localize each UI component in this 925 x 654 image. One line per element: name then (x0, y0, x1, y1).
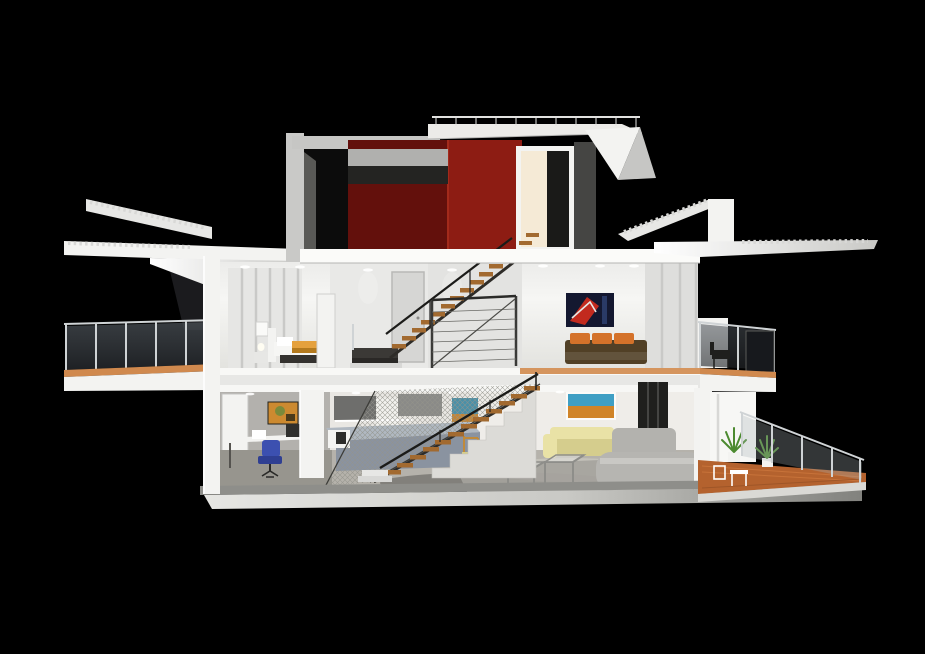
stair-tread (397, 463, 413, 468)
downlight-icon (246, 393, 255, 396)
landing-step (350, 363, 402, 368)
stair-tread (524, 386, 540, 391)
balcony-glass (66, 322, 214, 370)
stairwell-wall-lit (448, 140, 522, 258)
downlight-icon (556, 391, 565, 394)
slatted-column (638, 382, 668, 430)
bedroom-picture (256, 322, 268, 336)
stair-tread (461, 424, 477, 429)
sofa-arm (543, 434, 557, 458)
downlight-icon (629, 264, 639, 267)
downlight-icon (352, 392, 361, 395)
winder-step (362, 470, 388, 476)
stair-tread (412, 328, 426, 333)
landscape-painting (566, 392, 616, 420)
tower-side-panel (574, 142, 596, 252)
stair-tread (435, 440, 451, 445)
chair-back (262, 440, 280, 457)
plant-pot (728, 452, 740, 462)
house-section-illustration (0, 0, 925, 654)
winder-step (358, 476, 392, 482)
painting-field (568, 406, 614, 418)
stairwell-window-dark (547, 151, 569, 247)
bedroom-door (317, 294, 335, 368)
stair-tread (423, 447, 439, 452)
cut-roof-post (286, 133, 304, 262)
daybed-highlight (600, 458, 700, 464)
upper-ceiling-slab (300, 249, 700, 263)
stair-tread (526, 233, 539, 237)
stair-tread (511, 394, 527, 399)
stair-tread (441, 304, 455, 309)
downlight-icon (295, 265, 305, 268)
stair-tread (410, 455, 426, 460)
abstract-painting (566, 293, 614, 327)
stair-tread (402, 336, 416, 341)
desk-printer (252, 430, 266, 439)
living-wood-floor-strip (520, 368, 700, 374)
downlight-icon (538, 264, 548, 267)
cut-slab-band (348, 149, 448, 166)
stair-tread (489, 264, 503, 269)
downlight-icon (447, 268, 457, 271)
office-print (268, 402, 298, 424)
stair-tread (470, 280, 484, 285)
upper-right-balcony (698, 318, 776, 392)
pillow (277, 337, 293, 346)
stair-tread (479, 272, 493, 277)
stair-tread (519, 241, 532, 245)
chair-seat (258, 456, 282, 464)
slab-shadow-band (348, 166, 448, 184)
stair-tread (392, 344, 406, 349)
painting-blue-band (602, 296, 607, 324)
void-inner-face (304, 152, 316, 260)
outdoor-table-top (730, 470, 748, 474)
wall-face (203, 256, 220, 494)
sofa-cushion (614, 333, 634, 344)
downlight-icon (595, 264, 605, 267)
wall-wash-glow (358, 272, 378, 304)
slider-glass-zone (645, 262, 698, 368)
stair-tread (473, 417, 489, 422)
stairwell-window-lit (521, 151, 547, 247)
door-knob (417, 317, 420, 320)
print-green-blob (275, 406, 285, 416)
painting-sky (568, 394, 614, 406)
tinted-glass-panel (746, 331, 774, 372)
stair-tread (460, 288, 474, 293)
clerestory-wall (708, 199, 734, 243)
chair-seat (712, 350, 730, 359)
downlight-icon (240, 265, 250, 268)
bedside-lamp (258, 343, 265, 351)
rendered-image (0, 0, 925, 654)
sofa-cushion (570, 333, 590, 344)
upper-left-balcony (64, 320, 216, 391)
sofa-cushion (592, 333, 612, 344)
sofa-back (550, 427, 614, 441)
print-dark-blob (286, 414, 295, 421)
coffee-maker (336, 432, 346, 444)
downlight-icon (363, 268, 373, 271)
chair-back (710, 342, 714, 355)
stair-tread (486, 409, 502, 414)
stair-tread (499, 401, 515, 406)
stair-tread (448, 432, 464, 437)
sofa-seat-highlight (565, 352, 647, 360)
nightstand (254, 352, 268, 363)
left-exterior-wall (203, 256, 220, 494)
partition-wall (300, 390, 324, 478)
